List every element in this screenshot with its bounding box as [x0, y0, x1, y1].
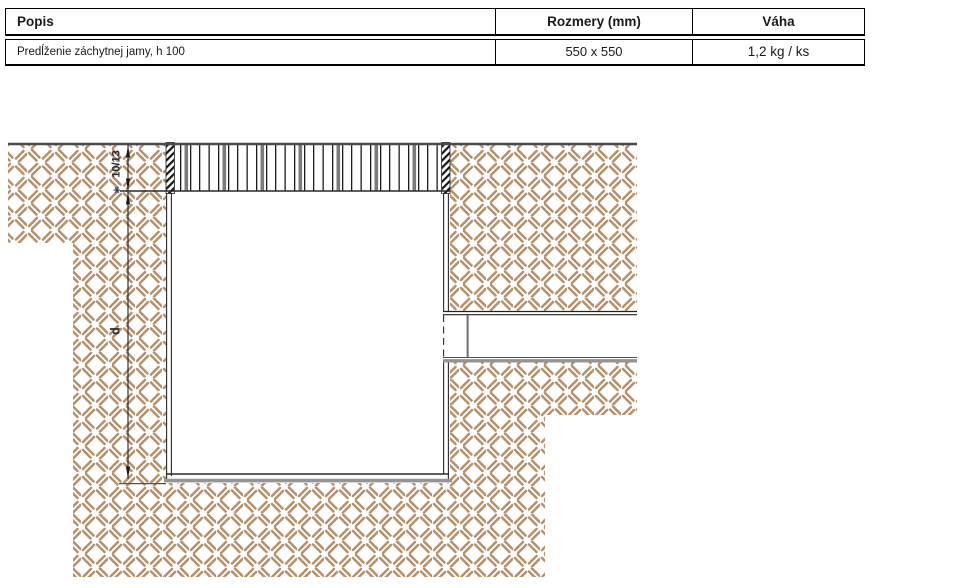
depth-dim-label: d	[109, 327, 123, 335]
product-spec-table: Popis Rozmery (mm) Váha Predĺženie záchy…	[5, 8, 865, 66]
ground-hatch-top-left	[8, 145, 166, 243]
ground-hatch-bottom-slab	[73, 483, 545, 577]
ground-hatch-below-channel	[450, 362, 637, 415]
ground-hatch-left-column	[73, 243, 166, 483]
column-header-vaha: Váha	[692, 9, 865, 34]
column-header-popis: Popis	[5, 9, 495, 34]
cell-vaha: 1,2 kg / ks	[692, 40, 865, 64]
grate-height-dim-label: 10/13	[111, 150, 123, 178]
cell-rozmery: 550 x 550	[495, 40, 692, 64]
technical-section-drawing: 10/13 ∗ d	[0, 0, 974, 588]
table-row: Predĺženie záchytnej jamy, h 100 550 x 5…	[5, 39, 865, 66]
datasheet-page: Popis Rozmery (mm) Váha Predĺženie záchy…	[0, 0, 974, 588]
cell-popis: Predĺženie záchytnej jamy, h 100	[5, 40, 495, 64]
column-header-rozmery: Rozmery (mm)	[495, 9, 692, 34]
ground-hatch-right-lower	[450, 415, 545, 483]
left-wall-steel-section	[166, 143, 174, 194]
right-wall-steel-section	[442, 143, 450, 194]
table-header-row: Popis Rozmery (mm) Váha	[5, 8, 865, 36]
grating-section	[174, 145, 442, 191]
footnote-star-symbol: ∗	[112, 186, 123, 194]
ground-hatch-top-right	[450, 145, 637, 311]
